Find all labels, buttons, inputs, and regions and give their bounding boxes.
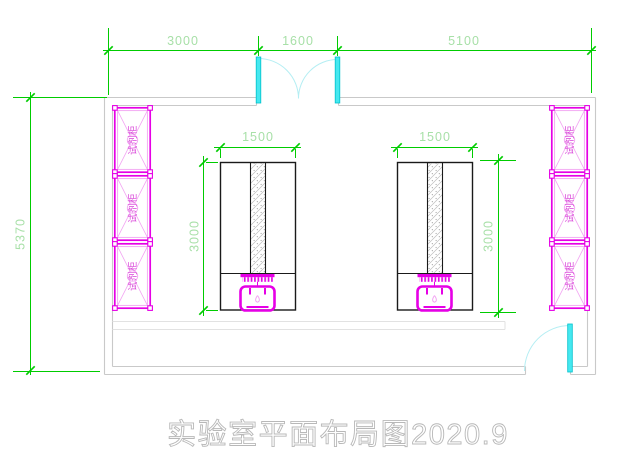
bench-hatch-strip	[251, 163, 265, 273]
door-leaf	[568, 324, 573, 372]
reagent-cabinet-unit	[113, 106, 153, 175]
dim-label-room-height: 5370	[14, 218, 28, 250]
dimension-room-height: 5370	[13, 92, 107, 375]
door-jamb-lines	[257, 98, 571, 375]
drawing-title: 实验室平面布局图2020.9	[167, 418, 509, 451]
door-leaf	[256, 57, 261, 103]
double-door-top	[256, 57, 340, 103]
dim-label-top-right: 5100	[448, 34, 480, 48]
reagent-cabinet-unit	[113, 174, 153, 243]
dimension-bench-right: 1500 3000	[391, 130, 516, 318]
dim-label-bench-width-right: 1500	[419, 130, 451, 144]
dimension-top: 3000 1600 5100	[103, 28, 596, 95]
reagent-cabinet-unit	[550, 242, 590, 311]
reagent-cabinet-block-right	[550, 106, 590, 311]
floor-plan-canvas: 试剂柜	[0, 0, 619, 469]
door-swing-arc	[299, 60, 338, 99]
door-swing-arc	[525, 326, 571, 372]
south-counter	[113, 322, 506, 330]
reagent-cabinet-unit	[550, 106, 590, 175]
cad-floor-plan-page: 试剂柜	[0, 0, 619, 469]
dim-label-bench-depth-left: 3000	[188, 220, 202, 252]
door-swing-arc	[259, 59, 299, 99]
dim-label-bench-depth-right: 3000	[482, 220, 496, 252]
wall-outer-line	[105, 98, 596, 375]
dim-label-top-left: 3000	[167, 34, 199, 48]
sink-symbol	[418, 274, 452, 311]
bench-hatch-strip	[428, 163, 442, 273]
dim-label-top-middle: 1600	[282, 34, 314, 48]
reagent-cabinet-block-left	[113, 106, 153, 311]
dimension-bench-left: 1500 3000	[188, 130, 302, 316]
single-door-bottom-right	[525, 324, 573, 372]
lab-bench-right	[398, 163, 473, 311]
lab-bench-left	[221, 163, 296, 311]
sink-symbol	[241, 274, 275, 311]
wall-inner-line	[113, 106, 588, 367]
door-leaf	[335, 57, 340, 103]
reagent-cabinet-unit	[550, 174, 590, 243]
dim-label-bench-width-left: 1500	[242, 130, 274, 144]
reagent-cabinet-unit	[113, 242, 153, 311]
